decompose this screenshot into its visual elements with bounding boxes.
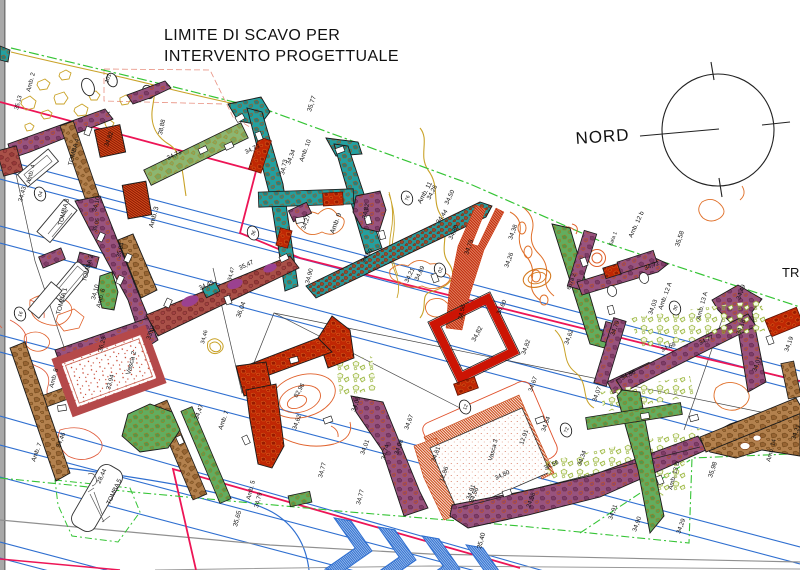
svg-text:INTERVENTO PROGETTUALE: INTERVENTO PROGETTUALE: [164, 48, 399, 65]
svg-text:LIMITE DI SCAVO PER: LIMITE DI SCAVO PER: [164, 27, 340, 44]
svg-text:NORD: NORD: [575, 125, 630, 148]
svg-text:TR: TR: [782, 265, 799, 280]
